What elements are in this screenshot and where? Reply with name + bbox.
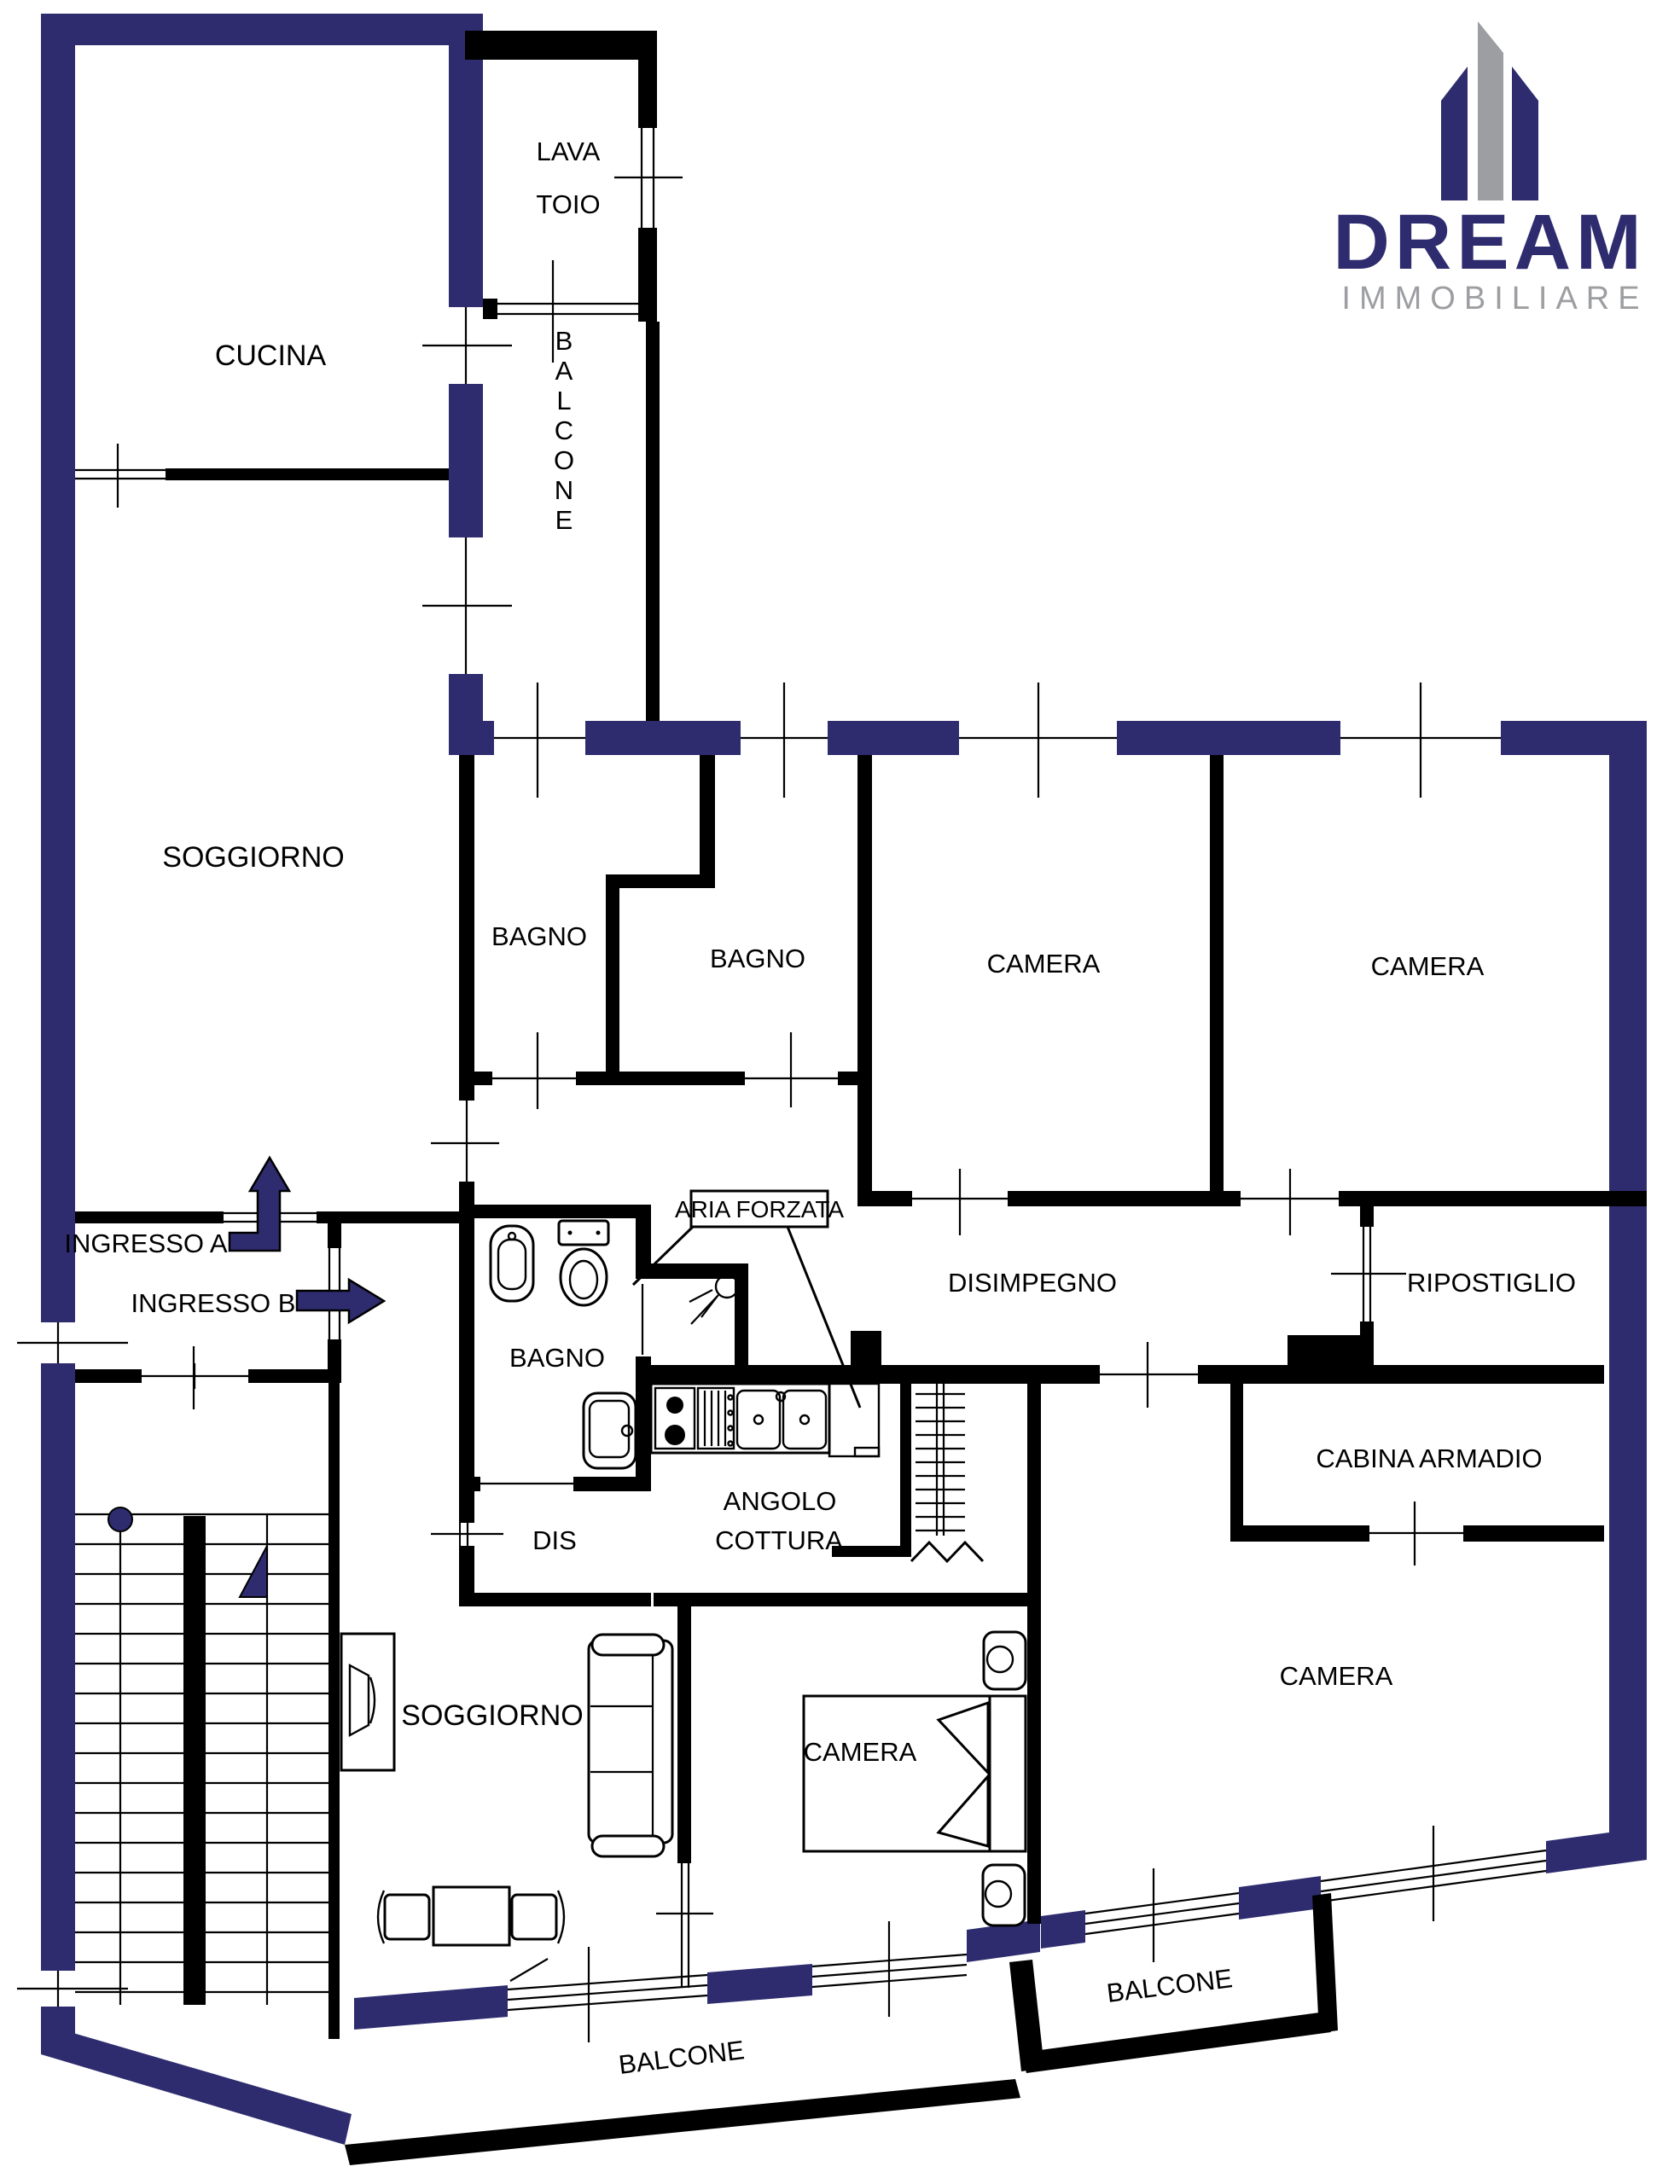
logo-tower-right	[1512, 67, 1538, 200]
label-soggiorno-upper: SOGGIORNO	[162, 841, 344, 874]
logo-subtitle-text: IMMOBILIARE	[1341, 281, 1648, 317]
label-soggiorno-lower: SOGGIORNO	[401, 1699, 583, 1732]
label-cabina-armadio: CABINA ARMADIO	[1316, 1443, 1542, 1473]
toilet-tank	[559, 1221, 608, 1245]
nightstand	[984, 1632, 1026, 1689]
label-cucina: CUCINA	[215, 340, 327, 372]
vent-shaft	[911, 1384, 983, 1561]
floor-plan: CUCINA LAVA TOIO BALCONE SOGGIORNO BAGNO…	[0, 0, 1680, 2184]
sofa	[589, 1641, 672, 1843]
label-balcone-small: BALCONE	[1105, 1963, 1234, 2008]
toilet-bowl	[561, 1249, 607, 1305]
label-angolo-2: COTTURA	[715, 1525, 843, 1555]
label-dis: DIS	[532, 1525, 577, 1555]
label-disimpegno: DISIMPEGNO	[948, 1268, 1117, 1298]
living-room-furniture	[341, 1634, 672, 1945]
chair	[385, 1895, 429, 1939]
stair-newel-dot	[108, 1507, 132, 1531]
bed	[804, 1696, 1026, 1851]
bedroom-furniture	[804, 1632, 1026, 1926]
kitchen-counter	[651, 1384, 879, 1456]
label-camera-big: CAMERA	[1280, 1661, 1393, 1691]
stair-direction-arrow	[240, 1546, 267, 1597]
label-ingresso-b: INGRESSO B	[131, 1288, 296, 1318]
label-balcone-big: BALCONE	[617, 2035, 746, 2080]
dining-table	[433, 1887, 509, 1945]
label-lavatoio-2: TOIO	[536, 189, 600, 219]
logo-brand-text: DREAM	[1333, 199, 1646, 286]
windows-exterior	[17, 307, 1501, 2007]
chair	[512, 1895, 556, 1939]
label-ripostiglio: RIPOSTIGLIO	[1407, 1268, 1576, 1298]
logo-tower-center	[1478, 21, 1503, 200]
label-bagno-1: BAGNO	[491, 921, 587, 951]
label-bagno-2: BAGNO	[710, 944, 805, 973]
agency-logo: DREAM IMMOBILIARE	[1333, 21, 1648, 317]
logo-tower-left	[1441, 67, 1468, 200]
label-bagno-lower: BAGNO	[509, 1343, 605, 1373]
label-camera-2: CAMERA	[1371, 951, 1485, 981]
ingresso-a-arrow	[230, 1158, 289, 1251]
label-aria-forzata: ARIA FORZATA	[675, 1196, 844, 1223]
label-camera-mid: CAMERA	[804, 1737, 917, 1767]
label-camera-1: CAMERA	[987, 949, 1101, 979]
staircase	[75, 1363, 328, 2005]
label-lavatoio-1: LAVA	[537, 136, 601, 166]
label-angolo-1: ANGOLO	[724, 1486, 837, 1516]
label-balcone-top: BALCONE	[554, 326, 574, 535]
nightstand	[983, 1865, 1025, 1926]
label-ingresso-a: INGRESSO A	[64, 1228, 228, 1258]
